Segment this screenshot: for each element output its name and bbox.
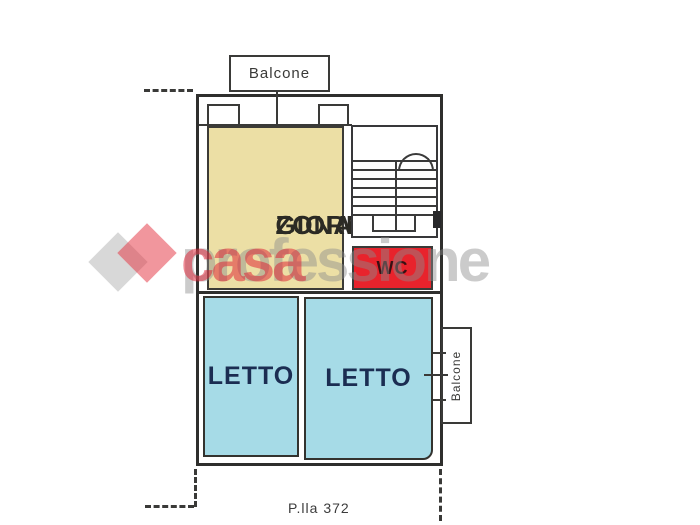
- room-letto-right: LETTO: [304, 297, 433, 460]
- boundary-dash-bottom-right-vertical: [439, 469, 442, 521]
- parcel-number-label: P.lla 372: [288, 500, 350, 516]
- room-letto-left: LETTO: [203, 296, 299, 457]
- window-marker: [424, 374, 448, 376]
- brand-diamond-red-icon: [117, 223, 176, 282]
- stairwell: [351, 125, 438, 238]
- room-zona-giorno: ZONA GIORNO: [207, 126, 344, 290]
- wall-pillar-right: [318, 104, 349, 126]
- floor-plan-image: Balcone ZONA GIORNO WC LETTO LETTO Balco…: [0, 0, 700, 525]
- brand-diamond-gray-icon: [88, 232, 147, 291]
- balcony-top-box: Balcone: [229, 55, 330, 92]
- boundary-dash-top-left: [144, 89, 193, 92]
- window-tick-bottom: [433, 399, 446, 401]
- door-marker: [433, 211, 441, 228]
- balcony-right-label: Balcone: [450, 350, 464, 400]
- interior-wall: [199, 291, 440, 294]
- boundary-dash-bottom-left-horizontal: [145, 505, 194, 508]
- room-wc: WC: [352, 246, 433, 290]
- room-wc-label: WC: [377, 258, 409, 279]
- balcony-top-label: Balcone: [249, 65, 310, 82]
- boundary-dash-bottom-left-vertical: [194, 469, 197, 507]
- room-letto-right-label: LETTO: [325, 364, 411, 393]
- window-tick-top: [433, 352, 446, 354]
- stair-landing-notch: [372, 214, 416, 232]
- room-letto-left-label: LETTO: [208, 362, 294, 391]
